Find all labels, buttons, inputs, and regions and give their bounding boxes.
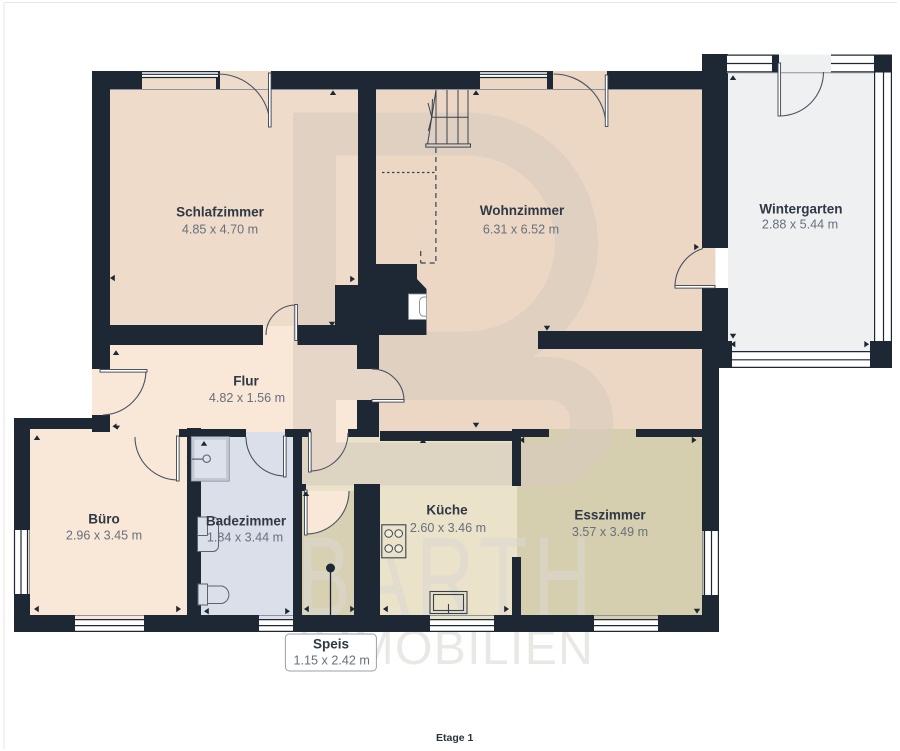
svg-text:4.85 x 4.70 m: 4.85 x 4.70 m [182, 223, 258, 237]
svg-text:Esszimmer: Esszimmer [574, 508, 646, 523]
svg-text:Wohnzimmer: Wohnzimmer [480, 203, 565, 218]
svg-text:Küche: Küche [426, 503, 468, 518]
svg-text:2.60 x 3.46 m: 2.60 x 3.46 m [410, 521, 486, 535]
svg-text:1.15 x 2.42 m: 1.15 x 2.42 m [294, 654, 370, 668]
svg-text:6.31 x 6.52 m: 6.31 x 6.52 m [483, 223, 559, 237]
svg-text:3.57 x 3.49 m: 3.57 x 3.49 m [572, 525, 648, 539]
svg-text:Speis: Speis [313, 637, 349, 652]
svg-text:4.82 x 1.56 m: 4.82 x 1.56 m [209, 391, 285, 405]
svg-text:1.84 x 3.44 m: 1.84 x 3.44 m [207, 531, 283, 545]
svg-text:Flur: Flur [233, 374, 259, 389]
svg-text:Schlafzimmer: Schlafzimmer [176, 205, 265, 220]
svg-text:Büro: Büro [88, 512, 120, 527]
svg-text:Etage 1: Etage 1 [436, 732, 474, 744]
svg-text:2.96 x 3.45 m: 2.96 x 3.45 m [66, 529, 142, 543]
svg-text:Wintergarten: Wintergarten [759, 202, 842, 217]
svg-text:Badezimmer: Badezimmer [206, 514, 287, 529]
svg-text:2.88 x 5.44 m: 2.88 x 5.44 m [762, 218, 838, 232]
